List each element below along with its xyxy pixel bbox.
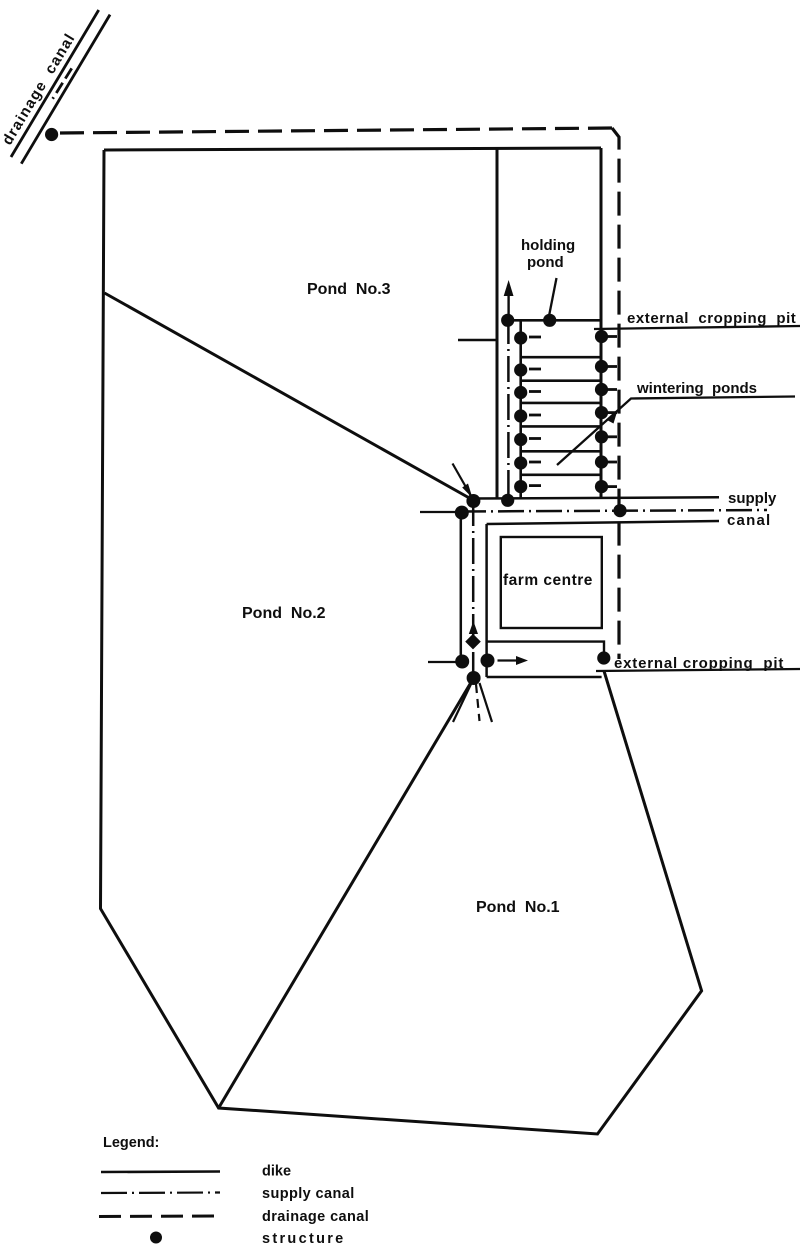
svg-text:Pond No.3: Pond No.3 [307,281,391,298]
svg-text:drainage canal: drainage canal [262,1209,369,1225]
svg-text:external cropping pit: external cropping pit [614,655,784,672]
svg-text:canal: canal [727,512,771,529]
svg-text:pond: pond [527,254,564,271]
svg-text:dike: dike [262,1164,291,1180]
svg-text:supply canal: supply canal [262,1186,355,1202]
svg-text:farm centre: farm centre [503,572,593,589]
svg-text:Legend:: Legend: [103,1135,159,1151]
svg-text:structure: structure [262,1231,346,1247]
svg-text:wintering ponds: wintering ponds [636,380,757,397]
svg-text:Pond No.1: Pond No.1 [476,899,560,916]
svg-text:external cropping pit: external cropping pit [627,310,796,327]
svg-text:holding: holding [521,237,575,254]
svg-text:Pond No.2: Pond No.2 [242,605,326,622]
svg-text:supply: supply [728,490,777,507]
